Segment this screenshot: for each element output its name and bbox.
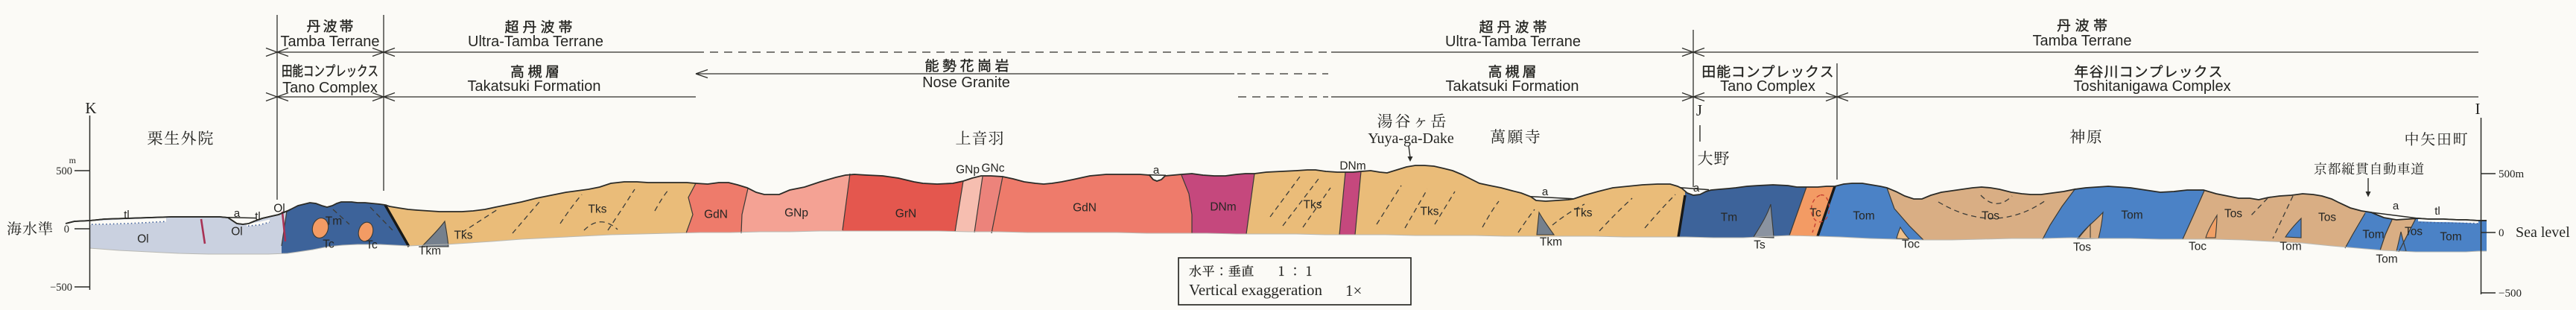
svg-text:−500: −500 [2499,288,2522,300]
svg-text:Tamba Terrane: Tamba Terrane [2032,33,2131,49]
svg-text:Tom: Tom [2121,209,2142,222]
svg-text:Tos: Tos [2073,241,2091,254]
svg-text:0: 0 [64,224,69,235]
svg-text:I: I [2475,100,2481,118]
svg-text:Takatsuki Formation: Takatsuki Formation [1446,78,1579,95]
svg-text:GrN: GrN [895,208,916,221]
svg-text:m: m [69,155,77,165]
svg-text:Toshitanigawa Complex: Toshitanigawa Complex [2073,78,2230,95]
svg-text:Tano Complex: Tano Complex [1720,78,1815,95]
svg-text:DNm: DNm [1210,201,1236,214]
svg-text:Tos: Tos [2318,212,2336,224]
svg-text:J: J [1696,101,1702,119]
svg-text:Sea level: Sea level [2516,224,2570,241]
svg-text:Ol: Ol [231,226,243,238]
svg-text:GdN: GdN [704,209,728,221]
svg-text:Tom: Tom [2280,241,2301,253]
svg-text:500: 500 [56,165,72,177]
svg-text:GNp: GNp [956,164,980,177]
svg-text:Tm: Tm [1721,212,1737,224]
svg-text:Nose Granite: Nose Granite [922,75,1010,91]
svg-text:Ol: Ol [273,203,285,215]
svg-text:Tos: Tos [2224,208,2242,221]
svg-text:Tano Complex: Tano Complex [282,80,378,96]
svg-text:a: a [234,207,241,220]
svg-text:a: a [2393,200,2399,212]
svg-text:Tks: Tks [1421,206,1439,218]
svg-text:1×: 1× [1345,282,1362,300]
svg-text:Ts: Ts [1754,239,1766,252]
svg-text:a: a [1153,164,1160,177]
svg-text:Tkm: Tkm [1540,236,1562,249]
svg-text:tl: tl [255,210,261,223]
svg-text:Toc: Toc [2189,241,2207,253]
svg-text:Yuya-ga-Dake: Yuya-ga-Dake [1368,130,1454,147]
svg-text:0: 0 [2499,227,2504,239]
svg-text:Toc: Toc [1902,238,1920,251]
svg-text:Tks: Tks [1574,207,1593,220]
svg-text:Tamba Terrane: Tamba Terrane [280,34,379,50]
svg-text:Tkm: Tkm [419,245,441,258]
svg-text:Tom: Tom [2362,229,2384,241]
svg-text:Tom: Tom [1853,210,1874,223]
svg-text:Tm: Tm [326,215,342,228]
svg-text:Tos: Tos [1982,210,1999,223]
svg-text:−500: −500 [50,282,72,294]
svg-text:Vertical exaggeration: Vertical exaggeration [1189,281,1322,299]
svg-text:Ol: Ol [137,233,149,246]
svg-text:Tos: Tos [2405,226,2423,238]
svg-text:GNc: GNc [982,162,1005,175]
svg-text:Takatsuki Formation: Takatsuki Formation [468,78,601,95]
svg-text:Tks: Tks [589,203,607,216]
svg-text:Tks: Tks [1304,199,1322,212]
svg-text:a: a [1542,186,1549,198]
svg-text:Tom: Tom [2440,231,2461,244]
svg-text:tl: tl [124,209,130,221]
svg-text:Tc: Tc [1809,207,1821,220]
svg-text:Tc: Tc [366,239,378,252]
svg-text:DNm: DNm [1339,160,1365,173]
svg-text:Ultra-Tamba Terrane: Ultra-Tamba Terrane [1445,34,1581,50]
svg-text:Tom: Tom [2376,253,2397,266]
svg-text:500m: 500m [2499,168,2525,180]
svg-text:a: a [1693,182,1700,194]
svg-text:GdN: GdN [1073,202,1097,215]
svg-text:Tks: Tks [454,230,473,242]
svg-text:K: K [85,99,96,117]
svg-text:Tc: Tc [323,238,334,251]
svg-text:Ultra-Tamba Terrane: Ultra-Tamba Terrane [468,34,603,50]
svg-text:GNp: GNp [784,207,808,220]
svg-text:tl: tl [2434,205,2440,218]
